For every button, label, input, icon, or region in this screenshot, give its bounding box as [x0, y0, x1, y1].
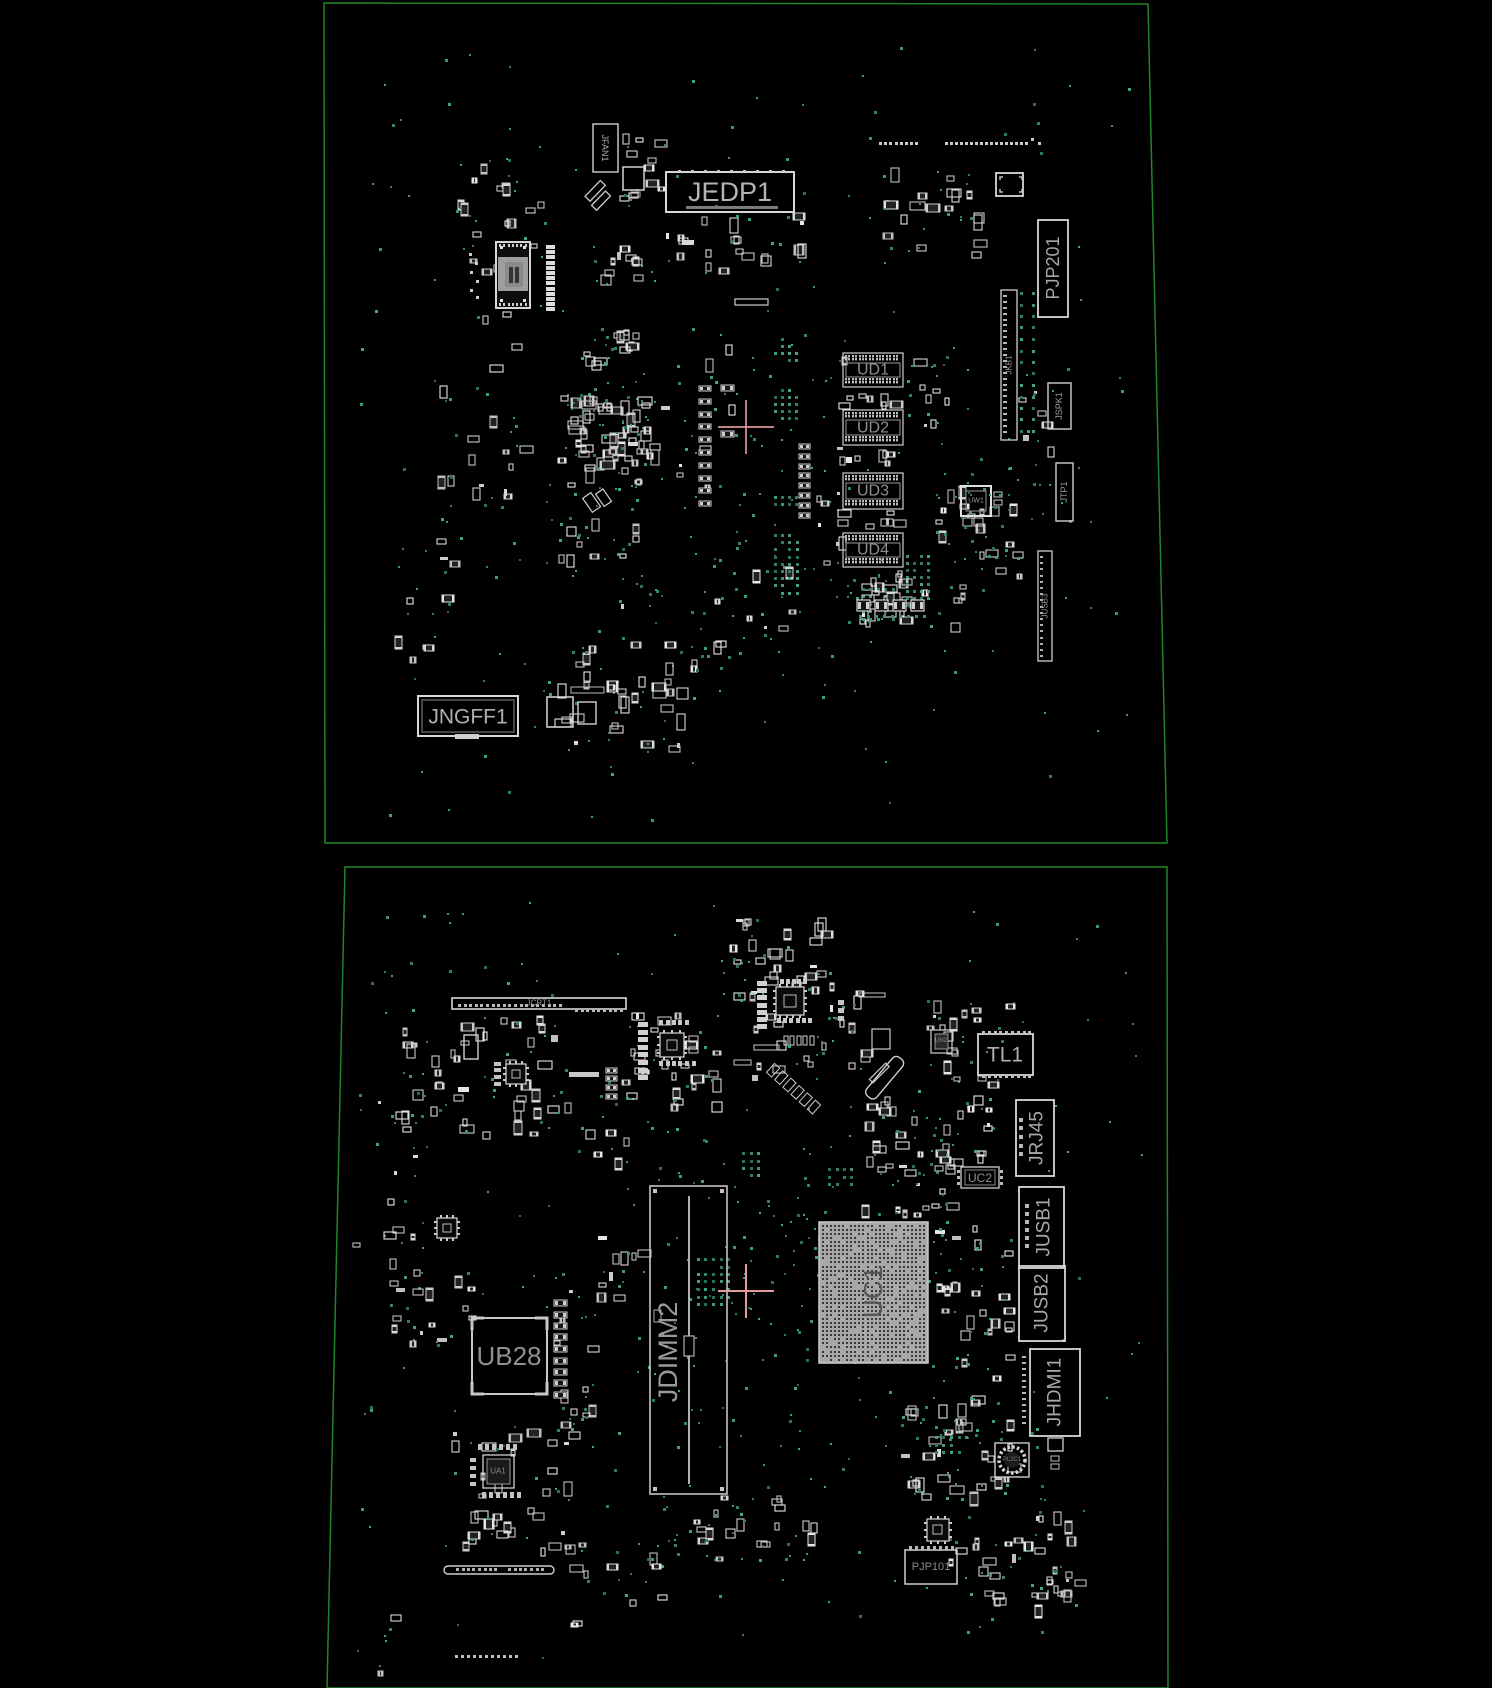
svg-text:UC1: UC1 [858, 1266, 888, 1318]
svg-text:TL1: TL1 [987, 1044, 1023, 1067]
svg-text:JUSB1: JUSB1 [1034, 1197, 1055, 1256]
svg-text:UN2: UN2 [935, 1038, 948, 1044]
svg-text:JCRT1: JCRT1 [527, 999, 552, 1008]
svg-text:JFAN1: JFAN1 [600, 134, 610, 161]
svg-text:PL2C1: PL2C1 [1003, 1457, 1022, 1463]
svg-text:JNGFF1: JNGFF1 [428, 706, 507, 729]
svg-text:PJP101: PJP101 [912, 1561, 951, 1573]
svg-text:JKB1: JKB1 [1005, 355, 1014, 375]
svg-text:JUSB2: JUSB2 [1032, 1273, 1053, 1332]
svg-text:UD4: UD4 [857, 542, 889, 559]
svg-text:JUSB3: JUSB3 [1041, 593, 1050, 618]
svg-text:UA1: UA1 [490, 1467, 506, 1476]
svg-text:JEDP1: JEDP1 [688, 177, 772, 207]
svg-text:UD2: UD2 [857, 420, 889, 437]
svg-text:JHDMI1: JHDMI1 [1045, 1358, 1066, 1427]
svg-text:UC2: UC2 [968, 1171, 992, 1185]
svg-text:JDIMM2: JDIMM2 [653, 1302, 683, 1403]
svg-text:UW1: UW1 [968, 498, 984, 505]
svg-text:PJP201: PJP201 [1043, 236, 1063, 299]
svg-text:UD1: UD1 [857, 362, 889, 379]
svg-text:JTP1: JTP1 [1059, 481, 1069, 502]
svg-text:JSPK1: JSPK1 [1054, 392, 1064, 420]
svg-text:UD3: UD3 [857, 483, 889, 500]
svg-text:UB28: UB28 [476, 1341, 541, 1371]
svg-text:JRJ45: JRJ45 [1027, 1111, 1048, 1165]
